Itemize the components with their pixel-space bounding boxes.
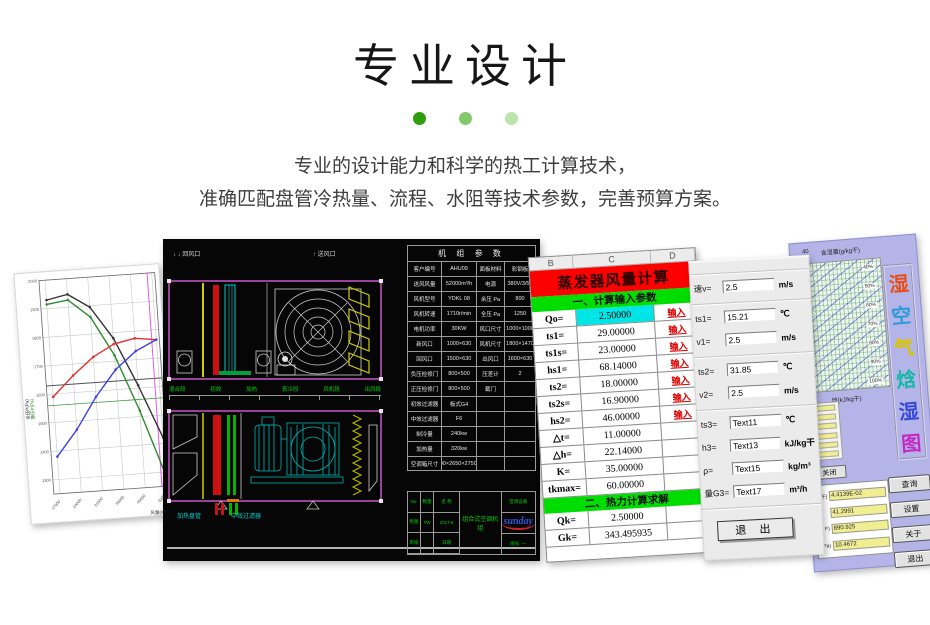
- form-row: v2= 2.5 m/s: [696, 377, 816, 406]
- dot-icon: [413, 112, 426, 125]
- dots-decoration: [0, 112, 930, 125]
- field-input[interactable]: 31.85: [727, 361, 780, 377]
- param-label: [477, 412, 505, 426]
- row-label: ts2=: [536, 377, 581, 396]
- svg-text:1300: 1300: [42, 477, 52, 483]
- app-top-labels: 40 含湿量(g/kg干): [802, 245, 861, 259]
- input-rows: Qo= 2.50000 输入 ts1= 29.00000 输入 ts1s= 23…: [532, 302, 709, 499]
- form-group-4: ts3= Text11 ℃ h3= Text13 kJ/kg干 ρ= Text1…: [697, 405, 821, 510]
- param-label: 加热量: [408, 442, 442, 456]
- row-label: △t=: [539, 428, 584, 447]
- param-value: 52000m³/h: [442, 277, 477, 291]
- field-label: v2=: [699, 388, 728, 400]
- row-label: ts2s=: [537, 394, 582, 413]
- table-row: 客户编号 AHU09 面板材料 彩钢板: [407, 261, 536, 276]
- param-label: 负压检修门: [408, 367, 442, 381]
- table-row: 风机转速 1710r/min 全压 Pa 1250: [407, 306, 536, 321]
- title-block-grid: No.数量名 称制图TW2017.6审核日期: [408, 492, 460, 554]
- rh-label: 50%: [863, 283, 875, 290]
- value-row: Pa) 10.4672: [820, 536, 891, 551]
- fan-curve-chart-panel: 1300140015001600170018001900200017000240…: [13, 263, 176, 525]
- svg-text:1400: 1400: [40, 449, 50, 455]
- param-value: [505, 397, 535, 411]
- field-label: ts2=: [698, 365, 727, 377]
- field-label: h3=: [702, 441, 731, 452]
- param-value: 1000×1000: [505, 322, 535, 336]
- field-unit: m/s: [784, 384, 799, 395]
- table-row: 回风口 1500×630 出风口 1600×630: [407, 351, 536, 366]
- section-label: 初效: [210, 385, 221, 393]
- drawing-name: 组合式空调机组: [460, 492, 502, 554]
- title-char: 湿: [888, 267, 910, 297]
- svg-text:2000: 2000: [28, 278, 38, 284]
- description-line-2: 准确匹配盘管冷热量、流程、水阻等技术参数，完善预算方案。: [0, 183, 930, 216]
- field-input[interactable]: Text11: [729, 414, 782, 430]
- param-value: 320kw: [442, 442, 477, 456]
- return-air-arrow-label: ↓ ↓ 回风口: [173, 249, 200, 258]
- row-value[interactable]: 343.495935: [589, 523, 668, 544]
- param-value: [505, 457, 535, 470]
- param-value: [505, 412, 535, 426]
- param-label: 空调箱尺寸: [408, 457, 442, 470]
- field-label: 速v=: [693, 281, 723, 295]
- field-unit: m/s: [778, 278, 793, 289]
- field-input[interactable]: Text17: [733, 483, 786, 499]
- param-label: 送风风量: [408, 277, 442, 291]
- param-label: 压差计: [477, 367, 505, 381]
- value-field[interactable]: 41.2991: [830, 503, 888, 517]
- svg-text:1500: 1500: [38, 421, 48, 427]
- param-value: YDKL 08: [442, 292, 477, 306]
- field-input[interactable]: Text13: [730, 437, 781, 453]
- field-input[interactable]: 2.5: [728, 384, 781, 400]
- param-value: 2: [505, 367, 535, 381]
- title-block-cell: 名 称: [434, 492, 460, 513]
- param-value: 1710r/min: [442, 307, 477, 321]
- field-label: ts3=: [701, 418, 730, 430]
- cad-drawing-panel: ↓ ↓ 回风口 ↑ 送风口 混合段初效加热表冷段风机段出风段 加热盘管中效过滤器…: [163, 239, 540, 561]
- title-block-cell: 2017.6: [434, 513, 460, 534]
- svg-text:1800: 1800: [32, 335, 42, 341]
- param-value: F6: [442, 412, 477, 426]
- result-values-panel: 干) 4.4139E-02 41.2991 F) 890.925 Pa) 10.…: [812, 479, 894, 559]
- form-group-2: ts1= 15.21 ℃ v1= 2.5 m/s: [692, 299, 814, 358]
- section-label: 表冷段: [282, 385, 299, 393]
- row-label: ts1s=: [534, 344, 579, 363]
- title-block-cell: 制图: [408, 513, 421, 534]
- company-logo: sunday: [502, 517, 535, 530]
- param-value: 6500×2650×2750(H): [442, 457, 477, 470]
- field-unit: ℃: [783, 361, 793, 372]
- company-label: 空调设备: [502, 492, 535, 513]
- param-label: 余压 Pa: [477, 292, 505, 306]
- title-char: 焓: [895, 362, 917, 392]
- value-field[interactable]: 890.925: [831, 520, 889, 534]
- field-label: ρ=: [703, 464, 732, 476]
- title-block-cell: 审核: [408, 533, 421, 554]
- field-unit: kJ/kg干: [784, 436, 815, 450]
- title-char: 空: [890, 299, 912, 329]
- description-line-1: 专业的设计能力和科学的热工计算技术，: [0, 150, 930, 183]
- section-label: 加热: [246, 385, 257, 393]
- value-row: F) 890.925: [818, 520, 889, 535]
- title-char: 湿: [898, 394, 920, 424]
- app-buttons: 查询设置关于退出: [888, 474, 930, 568]
- form-row: v1= 2.5 m/s: [693, 324, 813, 353]
- title-block-right: 空调设备 sunday 图号: —: [502, 492, 535, 554]
- param-label: 新风口: [408, 337, 442, 351]
- table-row: 空调箱尺寸 6500×2650×2750(H): [407, 456, 536, 471]
- field-input[interactable]: 2.5: [722, 278, 775, 294]
- field-label: 量G3=: [704, 486, 734, 500]
- table-row: 加热量 320kw: [407, 441, 536, 456]
- component-label: 中效过滤器: [231, 511, 261, 520]
- table-row: 新风口 1000×630 风机尺寸 1800×1470: [407, 336, 536, 351]
- param-label: 风机型号: [408, 292, 442, 306]
- dimension-row: [169, 395, 381, 400]
- param-label: 风机尺寸: [477, 337, 505, 351]
- rh-label: 90%: [869, 359, 881, 366]
- param-label: [477, 397, 505, 411]
- field-label: ts1=: [695, 312, 724, 324]
- field-input[interactable]: 2.5: [725, 331, 778, 347]
- param-label: 电源: [477, 277, 505, 291]
- value-row: 41.2991: [817, 503, 888, 518]
- component-labels-row: 加热盘管中效过滤器: [177, 511, 261, 520]
- dot-icon: [459, 112, 472, 125]
- field-label: v1=: [696, 335, 725, 347]
- row-label: △h=: [540, 445, 585, 464]
- param-value: 板式G4: [442, 397, 477, 411]
- calculation-form: 速v= 2.5 m/s ts1= 15.21 ℃ v1= 2.5 m/s: [688, 255, 825, 561]
- title-block-cell: No.: [408, 492, 421, 513]
- param-value: 800×500: [442, 367, 477, 381]
- param-value: 1600×630: [505, 352, 535, 366]
- svg-text:45000: 45000: [135, 492, 147, 504]
- app-button[interactable]: 关于: [892, 524, 930, 543]
- row-label: tkmax=: [543, 479, 588, 498]
- table-row: 初效过滤器 板式G4: [407, 396, 536, 411]
- param-label: [477, 457, 505, 470]
- unit-parameters-title: 机 组 参 数: [407, 245, 536, 261]
- page: 专业设计 专业的设计能力和科学的热工计算技术， 准确匹配盘管冷热量、流程、水阻等…: [0, 0, 930, 625]
- param-label: 出风口: [477, 352, 505, 366]
- row-label: Gk=: [546, 528, 591, 547]
- param-value: 240kw: [442, 427, 477, 441]
- table-row: 中效过滤器 F6: [407, 411, 536, 426]
- title-block-cell: 日期: [434, 533, 460, 554]
- rh-label: 60%: [865, 302, 877, 309]
- drawing-title-block: No.数量名 称制图TW2017.6审核日期 组合式空调机组 空调设备 sund…: [407, 491, 536, 555]
- title-block-cell: [421, 533, 434, 554]
- svg-text:17000: 17000: [50, 498, 62, 510]
- param-label: 截门: [477, 382, 505, 396]
- form-row: 量G3= Text17 m³/h: [701, 476, 821, 505]
- rh-label: 40%: [862, 264, 874, 271]
- section-label: 混合段: [169, 385, 186, 393]
- form-row: 速v= 2.5 m/s: [690, 271, 810, 300]
- param-label: [477, 427, 505, 441]
- drawing-number: 图号: —: [502, 534, 535, 554]
- rh-label: 100%: [868, 378, 883, 385]
- table-row: 风机型号 YDKL 08 余压 Pa 800: [407, 291, 536, 306]
- dot-icon: [505, 112, 518, 125]
- description: 专业的设计能力和科学的热工计算技术， 准确匹配盘管冷热量、流程、水阻等技术参数，…: [0, 150, 930, 217]
- exit-button[interactable]: 退 出: [717, 517, 794, 541]
- title-block-cell: 数量: [421, 492, 434, 513]
- param-label: 初效过滤器: [408, 397, 442, 411]
- param-label: 客户编号: [408, 262, 442, 276]
- row-label: hs2=: [538, 411, 583, 430]
- evaporator-spreadsheet: B C D 蒸发器风量计算 一、计算输入参数 Qo= 2.50000 输入 ts…: [528, 247, 714, 563]
- row-label: ts1=: [533, 327, 578, 346]
- param-label: 全压 Pa: [477, 307, 505, 321]
- title-char: 图: [900, 426, 922, 456]
- param-label: 面板材料: [477, 262, 505, 276]
- param-label: 电机功率: [408, 322, 442, 336]
- row-label: Qk=: [545, 511, 590, 530]
- value-field[interactable]: 4.4139E-02: [829, 487, 887, 501]
- table-row: 送风风量 52000m³/h 电源 380V/3/50: [407, 276, 536, 291]
- app-button[interactable]: 退出: [894, 549, 930, 568]
- field-unit: ℃: [780, 308, 790, 319]
- component-label: 加热盘管: [177, 511, 201, 520]
- field-unit: ℃: [785, 414, 795, 425]
- section-labels-row: 混合段初效加热表冷段风机段出风段: [169, 385, 381, 393]
- unit-parameters-table: 机 组 参 数 客户编号 AHU09 面板材料 彩钢板 送风风量 52000m³…: [407, 245, 536, 471]
- title-char: 气: [893, 331, 915, 361]
- row-label: hs1=: [535, 360, 580, 379]
- param-label: 中效过滤器: [408, 412, 442, 426]
- value-row: 干) 4.4139E-02: [816, 487, 887, 502]
- param-label: 风机转速: [408, 307, 442, 321]
- rh-label: 70%: [866, 321, 878, 328]
- value-field[interactable]: 10.4672: [833, 536, 891, 550]
- svg-text:静压P(Pa): 静压P(Pa): [28, 398, 36, 419]
- humidity-axis-label: 含湿量(g/kg干): [820, 245, 860, 257]
- field-input[interactable]: 15.21: [724, 308, 777, 324]
- row-label: K=: [542, 462, 587, 481]
- app-vertical-title: 湿空气焓湿图: [882, 263, 927, 461]
- fan-curve-chart: 1300140015001600170018001900200017000240…: [14, 264, 177, 526]
- table-row: 正压检修门 800×500 截门: [407, 381, 536, 396]
- param-value: 800×500: [442, 382, 477, 396]
- param-value: 1000×630: [442, 337, 477, 351]
- param-value: [505, 427, 535, 441]
- param-label: 制冷量: [408, 427, 442, 441]
- param-label: [477, 442, 505, 456]
- param-label: 正压检修门: [408, 382, 442, 396]
- field-unit: m³/h: [789, 483, 807, 494]
- section-label: 出风段: [364, 385, 381, 393]
- param-value: [505, 382, 535, 396]
- param-label: 回风口: [408, 352, 442, 366]
- param-value: [505, 442, 535, 456]
- svg-text:1600: 1600: [36, 392, 46, 398]
- title-block-cell: TW: [421, 513, 434, 534]
- section-label: 风机段: [323, 385, 340, 393]
- table-row: 电机功率 30KW 风口尺寸 1000×1000: [407, 321, 536, 336]
- field-unit: m/s: [781, 331, 796, 342]
- table-row: 制冷量 240kw: [407, 426, 536, 441]
- svg-text:1900: 1900: [30, 307, 40, 313]
- svg-text:24000: 24000: [72, 497, 84, 509]
- app-button[interactable]: 查询: [888, 474, 930, 493]
- supply-air-arrow-label: ↑ 送风口: [313, 249, 336, 258]
- svg-text:31000: 31000: [93, 495, 105, 507]
- param-value: 1500×630: [442, 352, 477, 366]
- param-label: 风口尺寸: [477, 322, 505, 336]
- param-value: AHU09: [442, 262, 477, 276]
- form-group-3: ts2= 31.85 ℃ v2= 2.5 m/s: [694, 352, 816, 411]
- param-value: 30KW: [442, 322, 477, 336]
- param-value: 1800×1470: [505, 337, 535, 351]
- page-title: 专业设计: [0, 30, 930, 96]
- field-input[interactable]: Text15: [732, 460, 785, 476]
- rh-label: 80%: [868, 340, 880, 347]
- app-button[interactable]: 设置: [890, 499, 930, 518]
- field-unit: kg/m³: [788, 460, 811, 471]
- svg-text:38000: 38000: [114, 494, 126, 506]
- table-row: 负压检修门 800×500 压差计 2: [407, 366, 536, 381]
- svg-text:1700: 1700: [34, 364, 44, 370]
- row-label: Qo=: [532, 310, 577, 329]
